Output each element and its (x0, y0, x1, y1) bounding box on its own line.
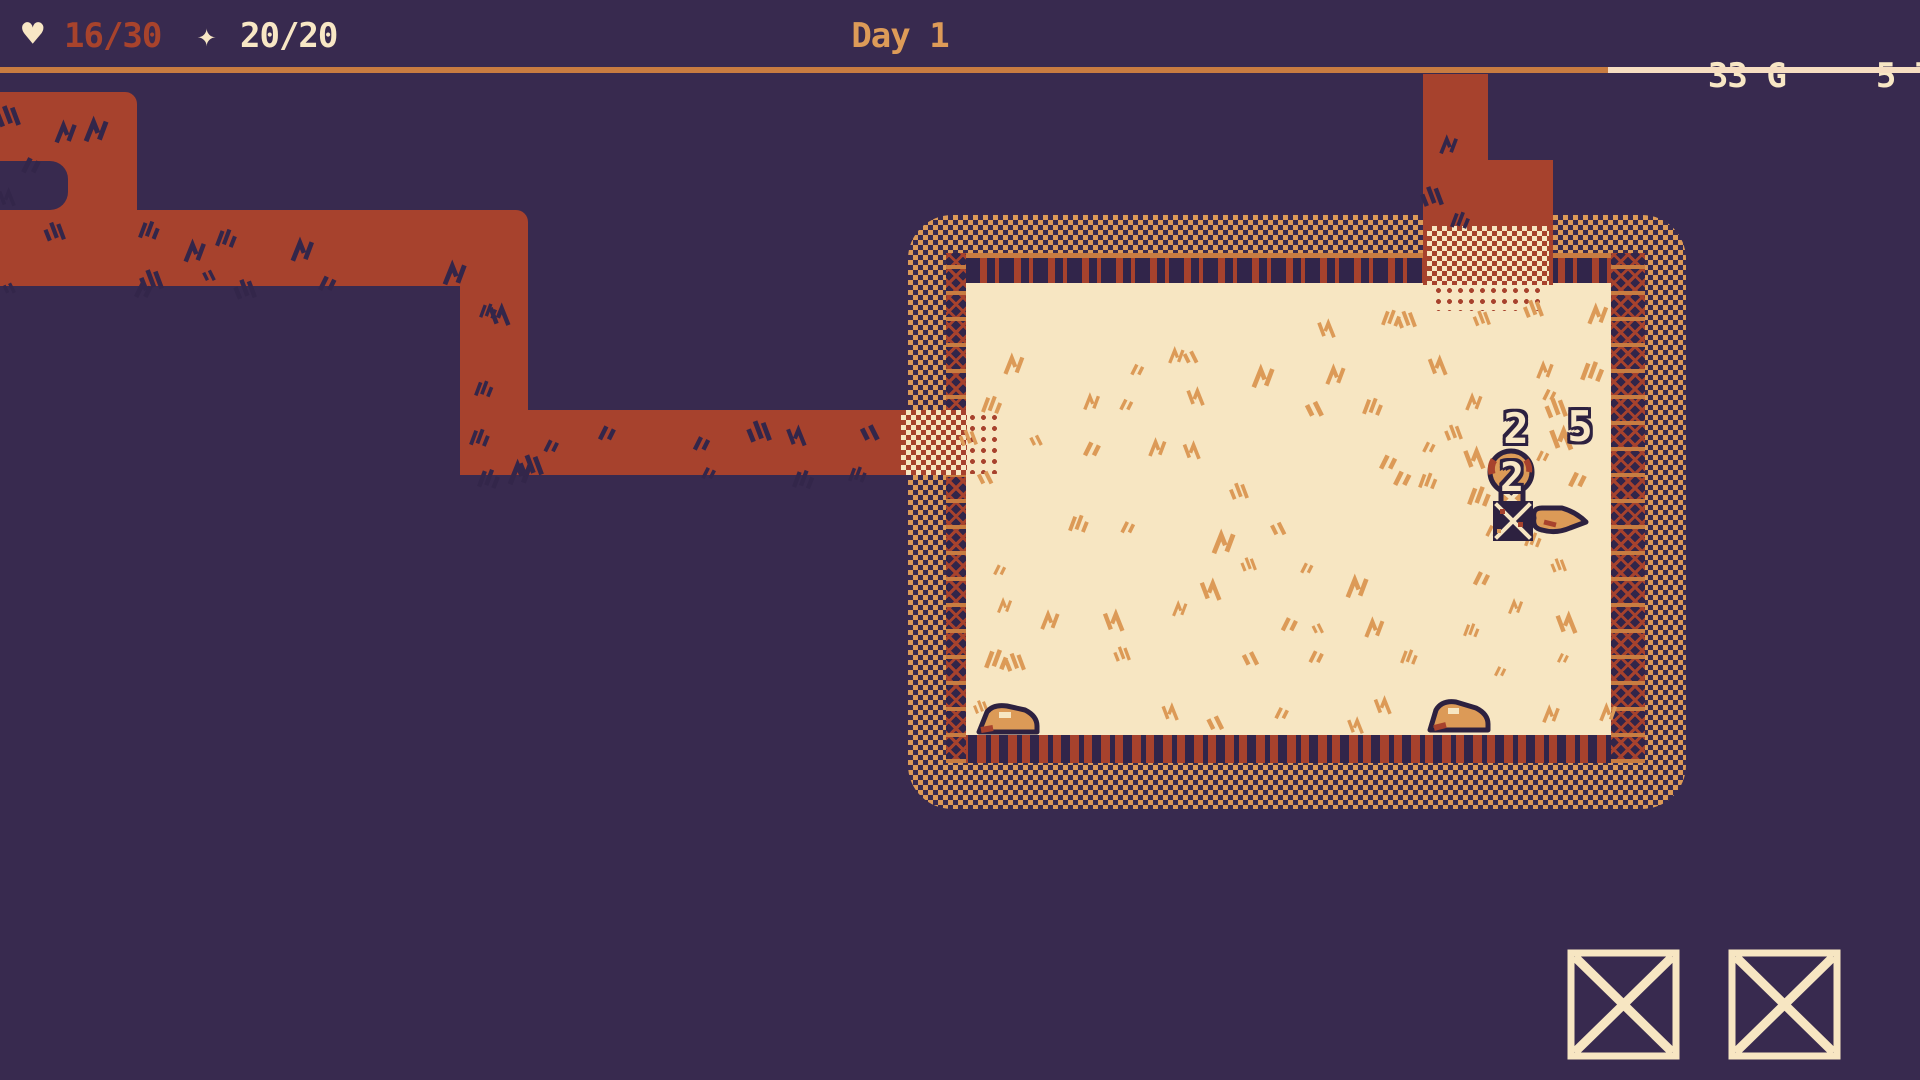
item-slot-1[interactable] (1567, 949, 1680, 1060)
spirit-value: 20/20 (240, 16, 337, 56)
gold-space (1747, 56, 1766, 96)
heart-icon: ♥ (22, 17, 44, 53)
north-entrance-dither (1427, 226, 1549, 285)
corridor-horizontal-1 (0, 210, 528, 286)
tile-number-left: 2 (1494, 408, 1538, 450)
tile-number-right: 5 (1558, 406, 1602, 448)
gold-value: 33 (1708, 56, 1747, 96)
tp-value: 5 (1876, 56, 1895, 96)
west-entrance-dither (901, 410, 967, 475)
rock (973, 698, 1043, 738)
x-icon (1728, 949, 1841, 1060)
x-icon (1567, 949, 1680, 1060)
feather-item[interactable] (1528, 500, 1592, 542)
rock (1424, 692, 1494, 736)
health-value: 16/30 (64, 16, 161, 56)
hud-underline-orange (0, 67, 1608, 73)
tp-space (1895, 56, 1914, 96)
sparkle-icon: ✦ (197, 19, 216, 51)
gold-display: 33 G (1630, 16, 1786, 136)
hud-underline-cream (1608, 67, 1920, 73)
enemy-power-number: 2 (1490, 458, 1534, 498)
gold-unit: G (1766, 56, 1785, 96)
room-wall-west (946, 253, 966, 763)
game-screen: 2 5 2 ♥ 16/30 ✦ 20/20 Day 1 33 G 5 TP (0, 0, 1920, 1080)
corridor-vertical-top-a (1423, 74, 1488, 166)
room-wall-east (1611, 253, 1645, 763)
north-entrance-fringe (1433, 285, 1543, 311)
corridor-horizontal-2 (460, 410, 967, 475)
item-slot-2[interactable] (1728, 949, 1841, 1060)
room-wall-south (946, 735, 1615, 763)
west-entrance-fringe (967, 412, 999, 474)
tp-unit: TP (1915, 56, 1920, 96)
tp-display: 5 TP (1798, 16, 1920, 136)
corridor-notch (0, 161, 68, 210)
day-label: Day 1 (820, 16, 980, 56)
